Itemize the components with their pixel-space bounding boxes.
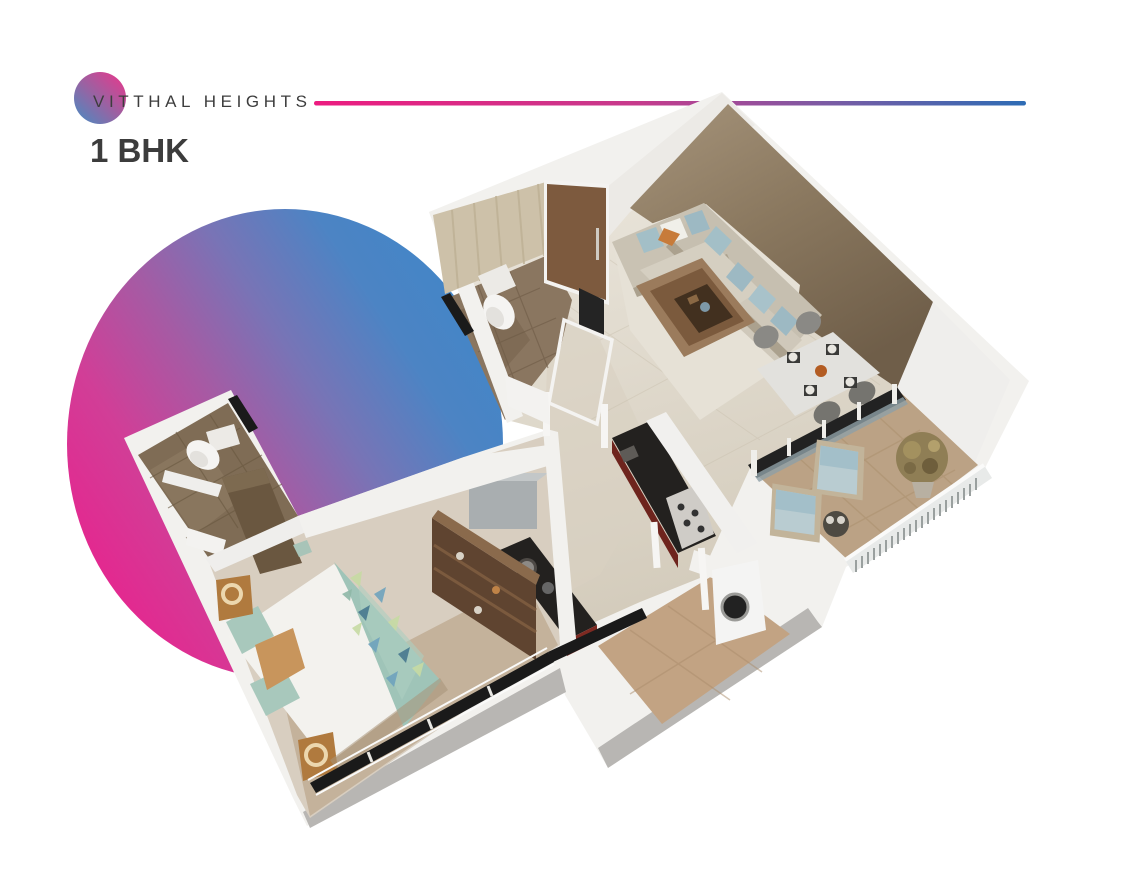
svg-text:VITTHAL HEIGHTS: VITTHAL HEIGHTS	[93, 92, 312, 111]
svg-text:1 BHK: 1 BHK	[90, 132, 189, 169]
